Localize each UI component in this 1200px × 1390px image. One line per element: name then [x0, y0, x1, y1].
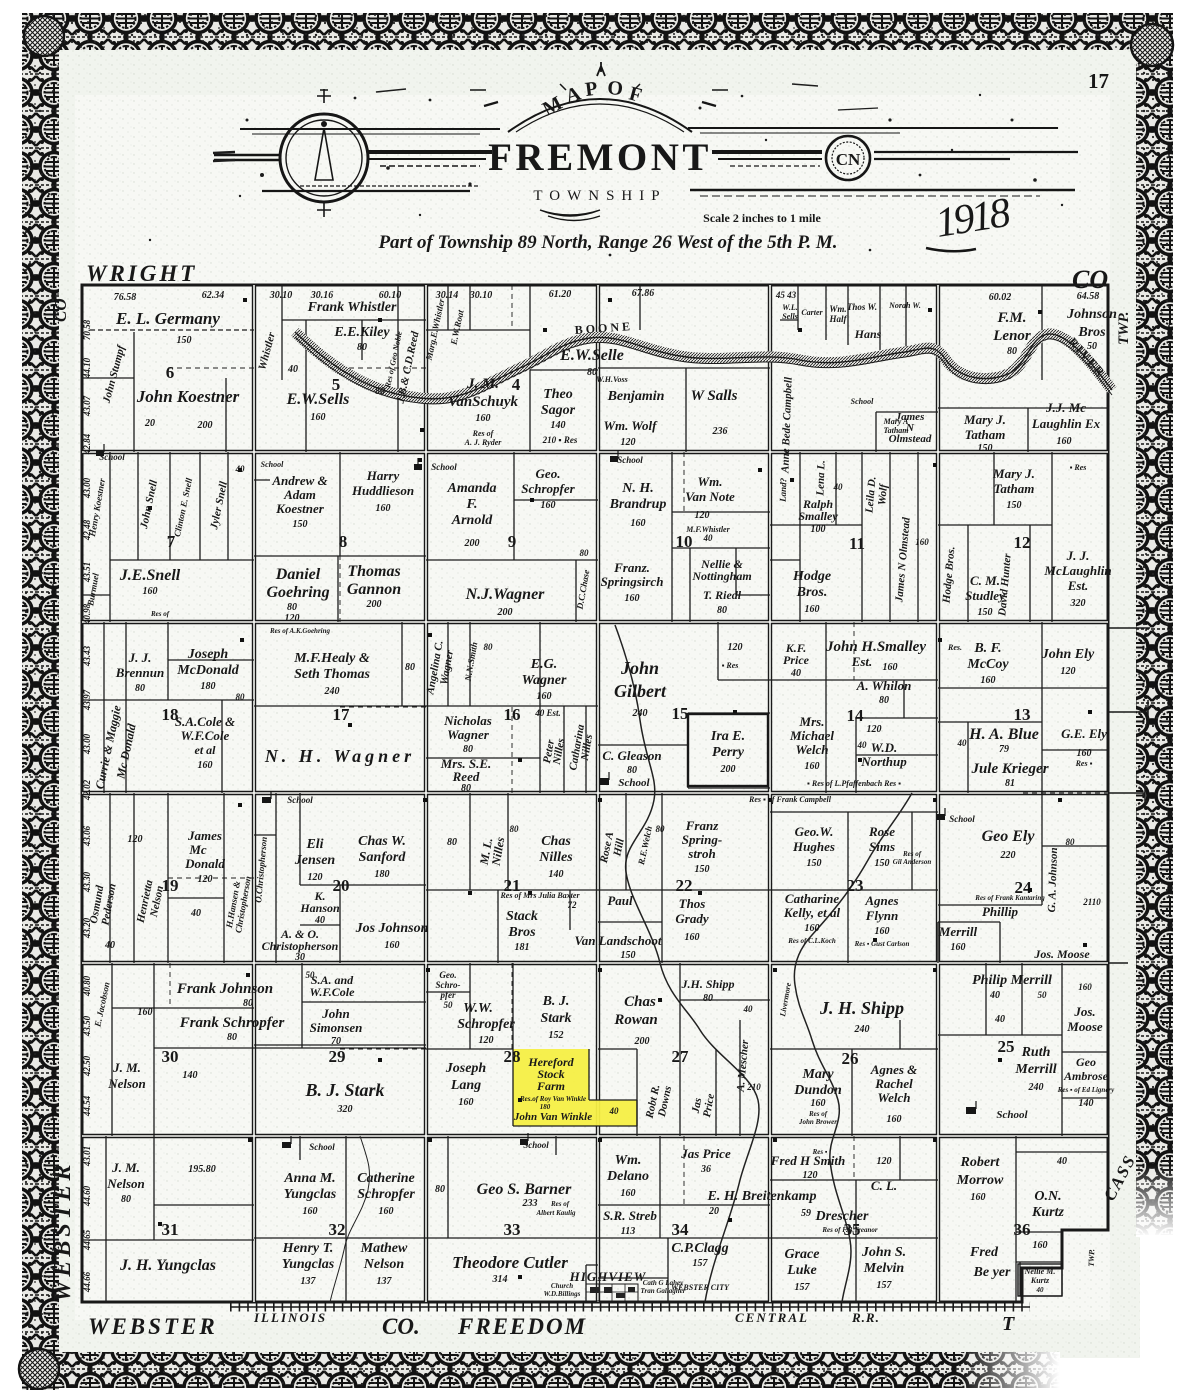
svg-text:43.06: 43.06	[82, 825, 92, 847]
svg-text:43.50: 43.50	[82, 1015, 92, 1037]
svg-text:180: 180	[201, 681, 216, 692]
svg-text:157: 157	[693, 1258, 709, 1269]
svg-text:Farm: Farm	[536, 1079, 565, 1093]
svg-text:Thomas: Thomas	[347, 563, 400, 580]
svg-text:67.86: 67.86	[632, 288, 655, 299]
svg-text:157: 157	[795, 1282, 811, 1293]
svg-text:80: 80	[510, 824, 520, 834]
svg-text:Part of Township 89 North, Ran: Part of Township 89 North, Range 26 West…	[377, 232, 837, 253]
svg-text:80: 80	[236, 692, 246, 702]
svg-text:120: 120	[1061, 666, 1076, 677]
svg-text:181: 181	[515, 942, 530, 953]
svg-text:42.84: 42.84	[82, 433, 92, 455]
svg-text:32: 32	[329, 1220, 346, 1239]
svg-text:Drescher: Drescher	[815, 1209, 869, 1224]
svg-text:Res ▪ of Frank Campbell: Res ▪ of Frank Campbell	[748, 795, 832, 804]
svg-text:80: 80	[461, 783, 471, 794]
svg-text:12: 12	[1014, 533, 1031, 552]
svg-text:Michael: Michael	[789, 728, 834, 743]
svg-text:J. J.: J. J.	[128, 650, 152, 665]
svg-text:Agnes: Agnes	[864, 893, 898, 908]
svg-text:160: 160	[1057, 436, 1072, 447]
svg-text:160: 160	[476, 413, 491, 424]
svg-text:80: 80	[717, 605, 727, 616]
svg-text:Wagner: Wagner	[522, 673, 567, 688]
svg-text:McCoy: McCoy	[966, 657, 1009, 672]
svg-text:Laughlin Ex: Laughlin Ex	[1031, 416, 1101, 431]
svg-text:43.00: 43.00	[82, 477, 92, 499]
svg-text:Harry: Harry	[366, 468, 400, 483]
svg-text:Sagor: Sagor	[541, 403, 576, 418]
svg-text:Kelly, et al: Kelly, et al	[783, 905, 841, 920]
svg-text:Philip Merrill: Philip Merrill	[972, 973, 1052, 988]
svg-text:Bros: Bros	[507, 925, 536, 940]
svg-text:59: 59	[801, 1208, 811, 1219]
svg-text:Brennun: Brennun	[115, 665, 164, 680]
svg-text:Flynn: Flynn	[865, 908, 899, 923]
svg-text:40: 40	[609, 1106, 620, 1116]
svg-text:W Salls: W Salls	[691, 388, 738, 404]
svg-text:23: 23	[847, 876, 864, 895]
svg-text:43.30: 43.30	[82, 871, 92, 893]
svg-text:50: 50	[1087, 341, 1097, 352]
svg-text:Nilles: Nilles	[538, 850, 573, 865]
svg-text:Grace: Grace	[785, 1247, 820, 1262]
svg-text:G. A. Johnson: G. A. Johnson	[1046, 847, 1060, 912]
svg-text:Res of: Res of	[150, 610, 170, 618]
svg-text:44.60: 44.60	[82, 1185, 92, 1207]
svg-text:40: 40	[314, 915, 325, 926]
svg-text:Merrill: Merrill	[1014, 1062, 1056, 1077]
svg-text:200: 200	[366, 599, 382, 610]
svg-text:TWP.: TWP.	[1116, 312, 1132, 345]
svg-text:44.54: 44.54	[82, 1095, 92, 1117]
svg-text:44.65: 44.65	[82, 1229, 92, 1251]
svg-text:15: 15	[672, 704, 689, 723]
svg-text:80: 80	[287, 602, 297, 613]
svg-text:80: 80	[447, 837, 457, 848]
svg-text:CO: CO	[1072, 265, 1108, 294]
svg-text:Spring-: Spring-	[682, 832, 722, 847]
svg-text:J.H. Shipp: J.H. Shipp	[680, 977, 734, 991]
svg-text:Lenor: Lenor	[992, 328, 1031, 344]
svg-text:120: 120	[198, 874, 213, 885]
svg-text:Jos. Moose: Jos. Moose	[1033, 947, 1090, 961]
svg-text:160: 160	[303, 1206, 318, 1217]
svg-text:160: 160	[915, 537, 929, 547]
svg-text:Daniel: Daniel	[275, 566, 321, 583]
svg-text:20: 20	[144, 418, 155, 429]
svg-text:160: 160	[379, 1206, 394, 1217]
svg-text:Christopherson: Christopherson	[262, 939, 339, 953]
svg-text:13: 13	[1014, 705, 1031, 724]
svg-text:WEBSTER: WEBSTER	[88, 1314, 218, 1339]
svg-text:150: 150	[978, 607, 993, 618]
svg-text:Res of Mrs Julia Baxter: Res of Mrs Julia Baxter	[499, 891, 580, 900]
svg-text:School: School	[99, 452, 125, 462]
svg-text:Phillip: Phillip	[982, 904, 1019, 919]
svg-text:137: 137	[301, 1276, 317, 1287]
svg-text:140: 140	[551, 420, 566, 431]
svg-text:Chas: Chas	[541, 834, 571, 849]
svg-text:Donald: Donald	[184, 856, 225, 871]
svg-text:40: 40	[287, 364, 298, 375]
svg-text:Carter: Carter	[801, 308, 823, 317]
svg-text:80: 80	[227, 1032, 237, 1043]
svg-text:School: School	[523, 1140, 549, 1150]
svg-text:17: 17	[1088, 69, 1109, 93]
svg-text:210: 210	[746, 1082, 761, 1092]
svg-text:WEBSTER CITY: WEBSTER CITY	[671, 1283, 730, 1292]
svg-text:40: 40	[957, 738, 968, 748]
svg-text:137: 137	[377, 1276, 393, 1287]
svg-text:40: 40	[1036, 1286, 1045, 1294]
svg-text:28: 28	[504, 1047, 521, 1066]
svg-text:42.50: 42.50	[82, 1055, 92, 1077]
svg-text:80: 80	[463, 744, 473, 755]
svg-text:Ruth: Ruth	[1021, 1045, 1051, 1060]
svg-text:76.58: 76.58	[114, 292, 137, 303]
svg-text:44.66: 44.66	[82, 1271, 92, 1293]
svg-text:Be yer: Be yer	[973, 1265, 1011, 1280]
svg-text:E. L. Germany: E. L. Germany	[115, 309, 220, 328]
svg-text:John Koestner: John Koestner	[136, 387, 240, 406]
svg-text:Merrill: Merrill	[938, 924, 978, 939]
svg-text:160: 160	[805, 604, 820, 615]
svg-text:40: 40	[989, 990, 1000, 1001]
svg-text:Gilbert: Gilbert	[614, 681, 667, 701]
svg-text:180: 180	[375, 869, 390, 880]
svg-text:CO: CO	[51, 298, 70, 322]
svg-text:20: 20	[333, 876, 350, 895]
svg-text:N. H.: N. H.	[621, 481, 654, 496]
svg-text:Norah W.: Norah W.	[888, 301, 921, 310]
svg-text:157: 157	[877, 1280, 893, 1291]
svg-text:McDonald: McDonald	[176, 663, 239, 678]
svg-text:Res of: Res of	[550, 1200, 570, 1208]
svg-text:Schropfer: Schropfer	[521, 481, 575, 496]
svg-text:40: 40	[994, 1014, 1005, 1025]
svg-text:O.N.: O.N.	[1034, 1189, 1061, 1204]
svg-text:79: 79	[999, 744, 1009, 755]
svg-text:Smalley: Smalley	[798, 509, 838, 523]
svg-text:Dundon: Dundon	[793, 1083, 842, 1098]
svg-text:Geo: Geo	[1076, 1055, 1096, 1069]
svg-text:Robert: Robert	[960, 1155, 1001, 1170]
svg-text:School: School	[261, 460, 284, 469]
svg-text:30: 30	[294, 952, 305, 963]
svg-text:ILLINOIS: ILLINOIS	[253, 1310, 327, 1325]
svg-text:61.20: 61.20	[549, 289, 572, 300]
svg-text:Hughes: Hughes	[792, 839, 835, 854]
svg-text:Land?: Land?	[778, 477, 789, 503]
svg-text:150: 150	[695, 864, 710, 875]
svg-text:J. M.: J. M.	[111, 1160, 140, 1175]
svg-text:Nelson: Nelson	[106, 1176, 145, 1191]
svg-text:Henry T.: Henry T.	[282, 1241, 334, 1256]
svg-text:120: 120	[695, 510, 710, 521]
svg-text:120: 120	[877, 1156, 892, 1167]
svg-text:J. J.: J. J.	[1066, 548, 1090, 563]
svg-text:Arnold: Arnold	[451, 513, 493, 528]
svg-text:Gannon: Gannon	[347, 581, 401, 598]
svg-text:W.F.Cole: W.F.Cole	[310, 985, 356, 999]
svg-text:B. J.: B. J.	[542, 994, 570, 1009]
svg-text:200: 200	[197, 420, 213, 431]
svg-text:Wolf: Wolf	[876, 482, 890, 505]
svg-text:J.J. Mc: J.J. Mc	[1045, 400, 1086, 415]
svg-text:McLaughlin: McLaughlin	[1043, 563, 1111, 578]
svg-text:Huddlieson: Huddlieson	[351, 483, 414, 498]
svg-text:Res ▪ of Ed Lignery: Res ▪ of Ed Lignery	[1057, 1086, 1115, 1094]
svg-text:160: 160	[311, 412, 326, 423]
svg-text:W.D.: W.D.	[871, 740, 897, 755]
svg-text:Wm.: Wm.	[615, 1153, 642, 1168]
svg-text:120: 120	[479, 1035, 494, 1046]
svg-text:34: 34	[672, 1220, 690, 1239]
svg-text:80: 80	[484, 642, 494, 652]
svg-text:Mc: Mc	[188, 842, 207, 857]
svg-text:Est.: Est.	[851, 654, 873, 669]
svg-text:Tatham: Tatham	[994, 481, 1035, 496]
svg-text:8: 8	[339, 532, 348, 551]
svg-text:Kurtz: Kurtz	[1030, 1276, 1050, 1285]
svg-text:160: 160	[805, 923, 820, 934]
svg-text:School: School	[949, 814, 975, 824]
svg-text:140: 140	[1079, 1098, 1094, 1109]
svg-text:Schro-: Schro-	[435, 980, 460, 990]
svg-text:Anna M.: Anna M.	[283, 1171, 335, 1186]
svg-text:50: 50	[306, 970, 316, 980]
svg-text:160: 160	[459, 1097, 474, 1108]
svg-text:Theodore Cutler: Theodore Cutler	[452, 1253, 568, 1272]
svg-text:120: 120	[867, 724, 882, 735]
svg-text:Res.: Res.	[947, 643, 962, 652]
svg-text:Wm.: Wm.	[698, 474, 723, 489]
svg-text:Catherine: Catherine	[357, 1171, 415, 1186]
svg-text:Welch: Welch	[878, 1090, 911, 1105]
svg-text:152: 152	[549, 1030, 564, 1041]
svg-text:160: 160	[887, 1114, 902, 1125]
svg-text:80: 80	[1066, 837, 1076, 847]
svg-text:W.L.: W.L.	[782, 303, 797, 312]
svg-text:TWP.: TWP.	[1087, 1249, 1097, 1267]
svg-text:240: 240	[1028, 1082, 1044, 1093]
svg-text:Nicholas: Nicholas	[443, 713, 492, 728]
svg-text:School: School	[851, 397, 874, 406]
svg-text:WRIGHT: WRIGHT	[86, 261, 197, 286]
svg-text:James: James	[187, 828, 222, 843]
svg-text:Geo S. Barner: Geo S. Barner	[477, 1181, 572, 1198]
svg-text:VanSchuyk: VanSchuyk	[448, 394, 519, 410]
svg-text:R.R.: R.R.	[851, 1310, 880, 1325]
svg-text:S.A.Cole &: S.A.Cole &	[175, 714, 235, 729]
svg-text:Springsirch: Springsirch	[601, 574, 664, 589]
svg-text:Mary J.: Mary J.	[992, 466, 1035, 481]
svg-text:Half: Half	[829, 314, 848, 324]
svg-text:26: 26	[842, 1049, 859, 1068]
svg-text:School: School	[996, 1109, 1028, 1121]
svg-text:160: 160	[971, 1192, 986, 1203]
svg-text:160: 160	[198, 760, 213, 771]
svg-text:160: 160	[621, 1188, 636, 1199]
svg-text:180: 180	[540, 1103, 551, 1111]
svg-text:E.W.Selle: E.W.Selle	[559, 347, 624, 364]
svg-text:40: 40	[104, 940, 115, 951]
svg-text:WEBSTER: WEBSTER	[50, 1161, 76, 1302]
svg-text:Res.of Roy Van Winkle: Res.of Roy Van Winkle	[519, 1095, 586, 1103]
svg-text:80: 80	[1007, 346, 1017, 357]
svg-text:Stack: Stack	[506, 909, 538, 924]
svg-text:J. H. Shipp: J. H. Shipp	[819, 998, 904, 1018]
svg-text:A. Whilon: A. Whilon	[856, 678, 912, 693]
svg-text:Andrew &: Andrew &	[271, 473, 327, 488]
svg-text:John: John	[321, 1006, 349, 1021]
svg-text:40: 40	[235, 464, 246, 474]
svg-text:200: 200	[634, 1036, 650, 1047]
svg-text:Scale 2 inches to 1 mile: Scale 2 inches to 1 mile	[703, 211, 821, 225]
svg-text:80: 80	[357, 342, 367, 353]
svg-text:80: 80	[703, 993, 713, 1004]
svg-text:160: 160	[631, 518, 646, 529]
svg-text:Theo: Theo	[543, 387, 573, 402]
svg-text:Schropfer: Schropfer	[457, 1017, 515, 1032]
svg-text:C. Gleason: C. Gleason	[602, 748, 661, 763]
svg-text:150: 150	[1007, 500, 1022, 511]
svg-text:Perry: Perry	[712, 745, 745, 760]
svg-text:236: 236	[712, 426, 728, 437]
svg-text:Sanford: Sanford	[359, 850, 407, 865]
svg-text:H. A. Blue: H. A. Blue	[968, 726, 1039, 743]
svg-text:Van Landschoot: Van Landschoot	[574, 933, 661, 948]
svg-text:Est.: Est.	[1067, 578, 1089, 593]
svg-text:43.07: 43.07	[82, 395, 92, 417]
svg-text:John Ely: John Ely	[1041, 647, 1095, 662]
svg-text:314: 314	[492, 1274, 508, 1285]
svg-text:Delano: Delano	[606, 1169, 649, 1184]
svg-text:O: O	[607, 77, 624, 100]
svg-text:30: 30	[162, 1047, 179, 1066]
svg-text:33: 33	[504, 1220, 521, 1239]
svg-text:160: 160	[1077, 748, 1092, 759]
svg-text:20: 20	[708, 1206, 719, 1217]
svg-text:160: 160	[385, 940, 400, 951]
svg-text:Benjamin: Benjamin	[607, 389, 665, 404]
svg-text:29: 29	[329, 1047, 346, 1066]
svg-text:200: 200	[497, 607, 513, 618]
svg-text:Catharine: Catharine	[785, 891, 839, 906]
svg-text:160: 160	[883, 662, 898, 673]
svg-text:C. M.: C. M.	[970, 573, 1000, 588]
svg-text:pfer: pfer	[440, 990, 456, 1000]
svg-text:Rose: Rose	[868, 824, 895, 839]
svg-text:Res of A.K.Goehring: Res of A.K.Goehring	[269, 627, 331, 635]
svg-text:Franz.: Franz.	[613, 560, 650, 575]
svg-text:80: 80	[435, 1184, 445, 1195]
svg-text:2110: 2110	[1082, 897, 1101, 907]
svg-text:62.34: 62.34	[202, 290, 225, 301]
svg-text:Northup: Northup	[860, 754, 907, 769]
svg-text:Simonsen: Simonsen	[310, 1020, 363, 1035]
svg-text:Reed: Reed	[452, 769, 480, 784]
svg-text:Morrow: Morrow	[956, 1173, 1004, 1188]
svg-text:80: 80	[135, 683, 145, 694]
svg-text:Bros: Bros	[1077, 325, 1106, 340]
svg-text:F.M.: F.M.	[997, 310, 1027, 326]
svg-text:Nelson: Nelson	[107, 1076, 146, 1091]
svg-text:John S.: John S.	[861, 1245, 906, 1260]
svg-text:240: 240	[854, 1024, 870, 1035]
svg-text:70.58: 70.58	[82, 319, 92, 340]
svg-text:Rowan: Rowan	[613, 1012, 657, 1028]
svg-text:Albert Kaulig: Albert Kaulig	[535, 1209, 576, 1217]
svg-text:Nottingham: Nottingham	[691, 569, 751, 583]
svg-text:80: 80	[656, 824, 666, 834]
svg-text:Koestner: Koestner	[275, 501, 325, 516]
svg-text:210 ▪ Res: 210 ▪ Res	[542, 435, 578, 445]
svg-text:Bros.: Bros.	[796, 585, 828, 600]
svg-text:B. F.: B. F.	[973, 641, 1001, 656]
svg-text:CENTRAL: CENTRAL	[735, 1310, 809, 1325]
svg-text:Jensen: Jensen	[294, 853, 336, 868]
svg-text:HIGHVIEW: HIGHVIEW	[569, 1269, 647, 1284]
svg-text:40: 40	[743, 1004, 754, 1014]
svg-text:27: 27	[672, 1047, 690, 1066]
svg-text:John Van Winkle: John Van Winkle	[513, 1111, 592, 1123]
svg-text:N. H. Wagner: N. H. Wagner	[264, 746, 415, 766]
svg-text:Paul: Paul	[607, 893, 633, 908]
svg-text:150: 150	[875, 858, 890, 869]
svg-text:Grady: Grady	[675, 911, 708, 926]
svg-text:120: 120	[803, 1170, 818, 1181]
svg-text:Amanda: Amanda	[446, 481, 496, 496]
svg-text:Eli: Eli	[305, 837, 323, 852]
svg-text:School: School	[309, 1142, 335, 1152]
svg-text:W.F.Cole: W.F.Cole	[181, 728, 230, 743]
svg-text:6: 6	[166, 363, 175, 382]
svg-text:160: 160	[541, 500, 556, 511]
svg-text:120: 120	[728, 642, 743, 653]
svg-text:F.: F.	[465, 497, 477, 512]
svg-text:80: 80	[121, 1194, 131, 1205]
svg-text:45 43: 45 43	[775, 290, 797, 300]
svg-text:14: 14	[847, 706, 865, 725]
svg-text:9: 9	[508, 532, 517, 551]
svg-text:School: School	[618, 777, 650, 789]
svg-text:B. J. Stark: B. J. Stark	[304, 1080, 384, 1100]
svg-text:Nelson: Nelson	[363, 1257, 405, 1272]
svg-text:160: 160	[138, 1007, 153, 1018]
svg-text:Brandrup: Brandrup	[609, 497, 667, 512]
svg-text:150: 150	[293, 519, 308, 530]
svg-text:Res ▪ Gust Carlson: Res ▪ Gust Carlson	[854, 940, 910, 948]
svg-text:Mrs.: Mrs.	[799, 714, 825, 729]
svg-text:Jule Krieger: Jule Krieger	[970, 761, 1048, 777]
svg-text:220: 220	[1000, 850, 1016, 861]
svg-text:140: 140	[549, 869, 564, 880]
svg-text:Frank Johnson: Frank Johnson	[176, 981, 273, 997]
svg-text:40 Est.: 40 Est.	[534, 708, 561, 718]
svg-text:40: 40	[790, 668, 801, 679]
svg-text:Geo.: Geo.	[536, 466, 561, 481]
svg-text:320: 320	[1070, 598, 1086, 609]
svg-text:42.02: 42.02	[82, 779, 92, 801]
svg-text:Res of: Res of	[472, 429, 495, 438]
svg-text:43.43: 43.43	[82, 645, 92, 667]
svg-text:43.01: 43.01	[82, 1146, 92, 1167]
svg-text:Res ▪: Res ▪	[1075, 759, 1093, 768]
svg-text:Price: Price	[783, 653, 810, 667]
